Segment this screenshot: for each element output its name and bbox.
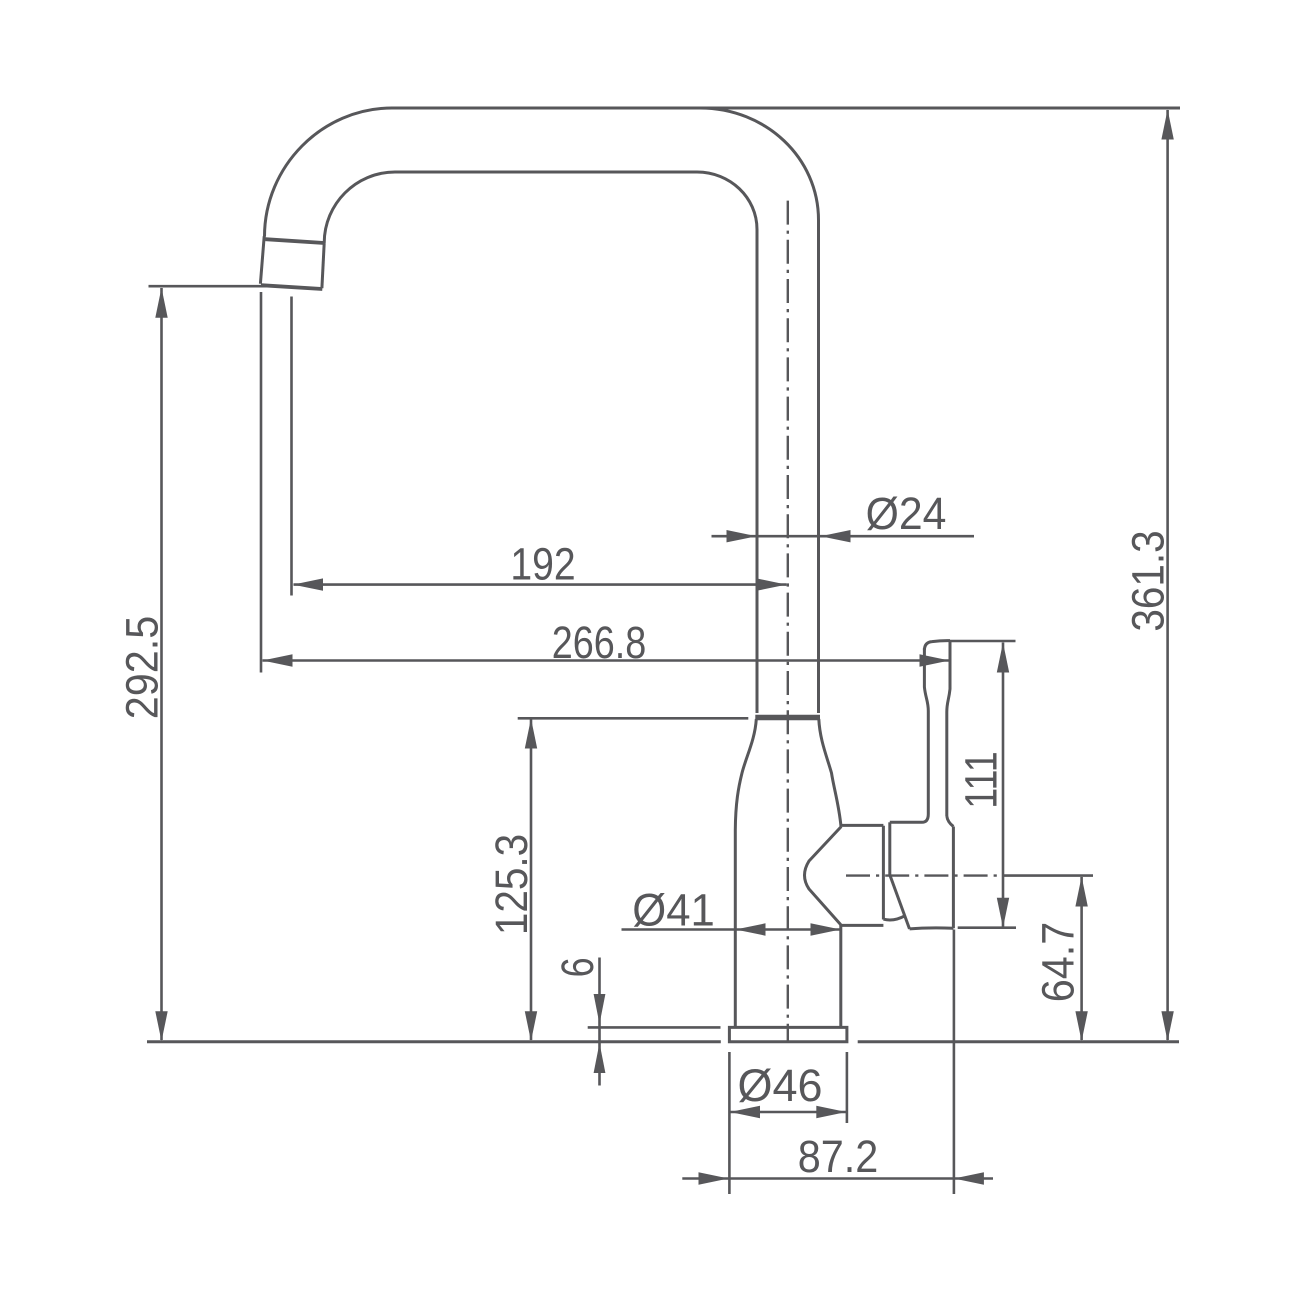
svg-text:192: 192 (510, 539, 575, 589)
svg-text:Ø41: Ø41 (632, 886, 715, 936)
svg-text:125.3: 125.3 (487, 834, 537, 935)
svg-text:64.7: 64.7 (1034, 922, 1084, 1003)
svg-text:6: 6 (552, 957, 603, 977)
svg-text:292.5: 292.5 (118, 616, 168, 720)
svg-text:361.3: 361.3 (1123, 530, 1173, 631)
svg-text:Ø46: Ø46 (737, 1060, 822, 1111)
svg-text:111: 111 (955, 751, 1006, 808)
svg-text:Ø24: Ø24 (866, 489, 947, 539)
svg-text:87.2: 87.2 (798, 1132, 879, 1182)
svg-text:266.8: 266.8 (552, 617, 647, 668)
